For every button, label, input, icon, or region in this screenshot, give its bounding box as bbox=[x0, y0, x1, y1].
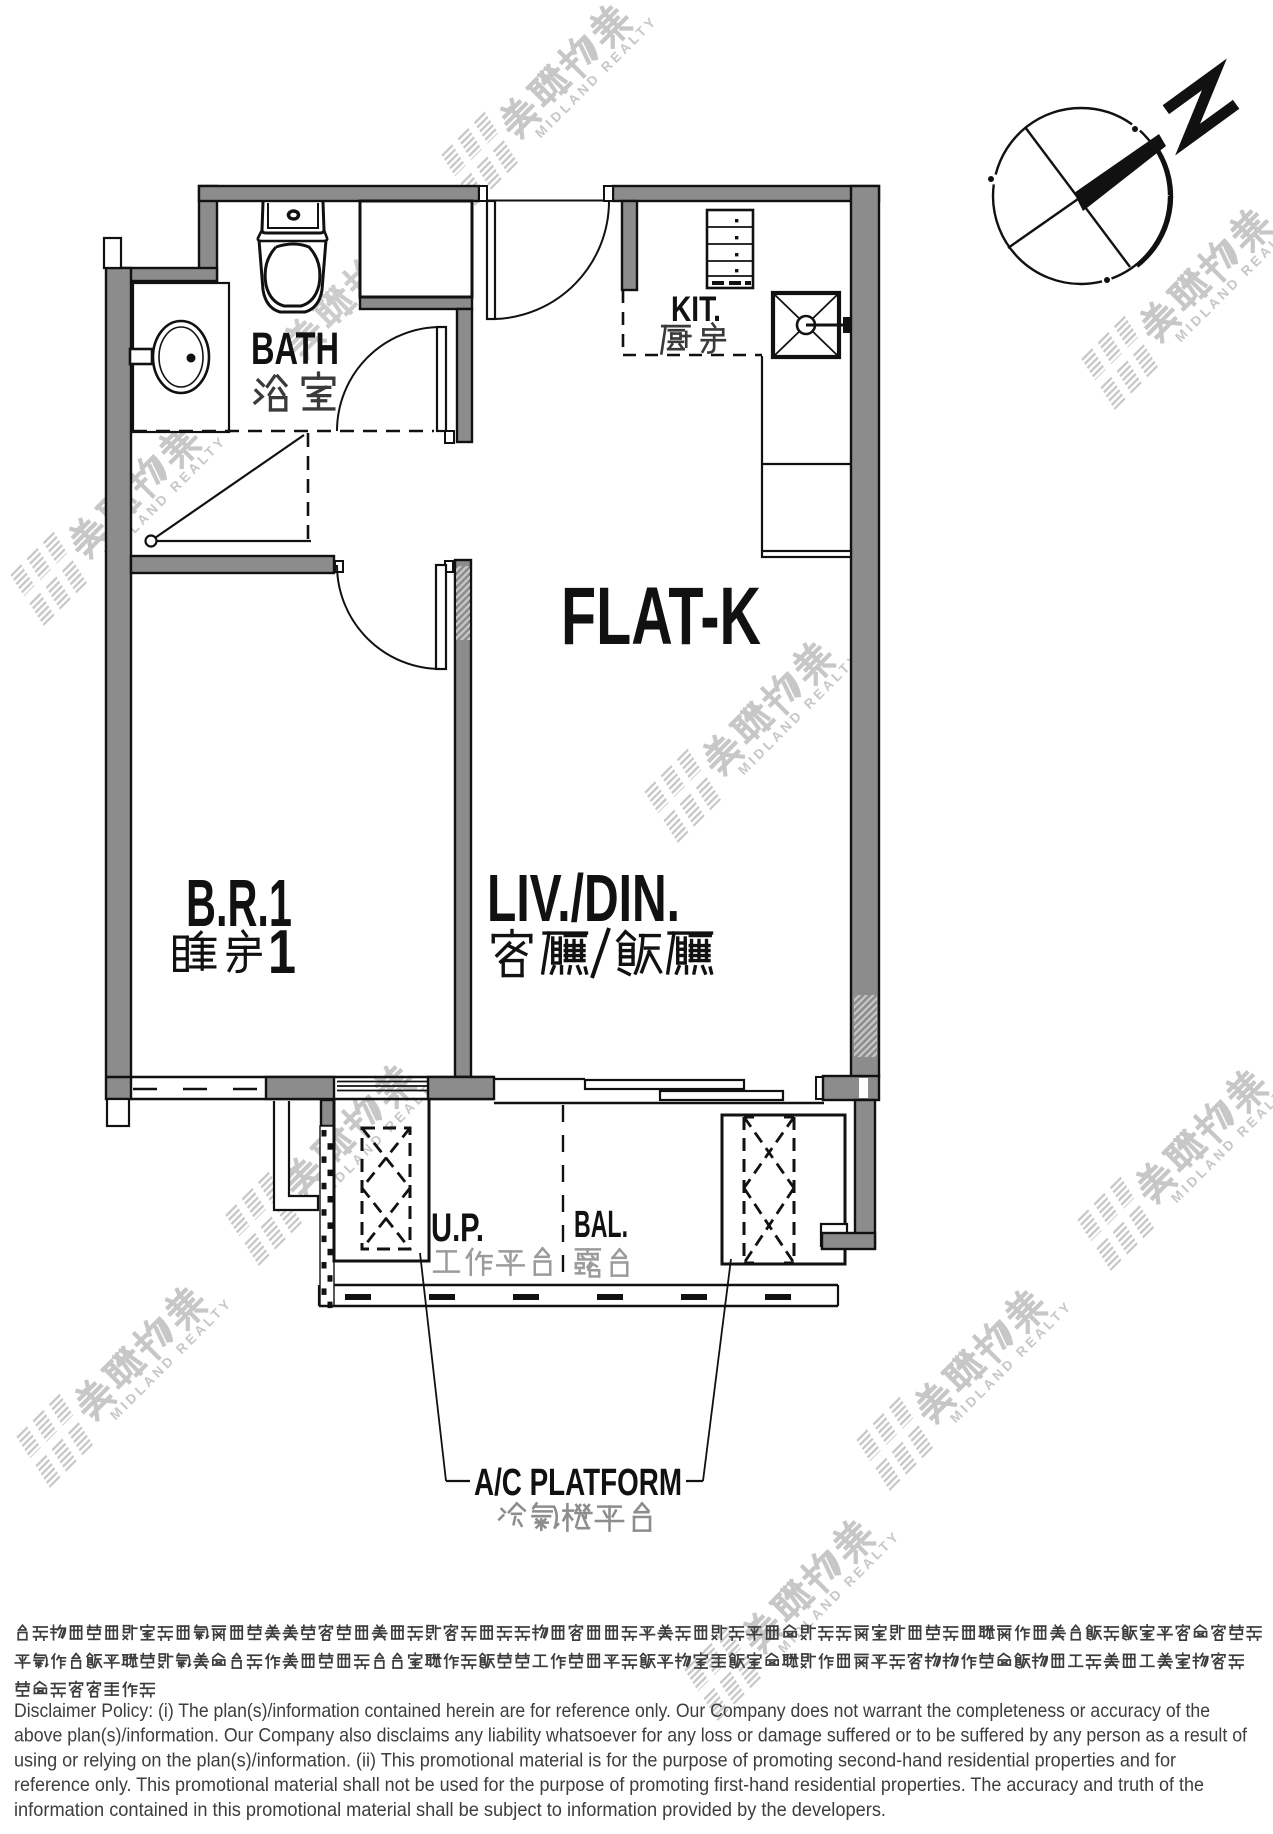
svg-text:Disclaimer Policy: (i) The pla: Disclaimer Policy: (i) The plan(s)/infor… bbox=[14, 1700, 1210, 1722]
svg-text:using or relying on the plan(s: using or relying on the plan(s)/informat… bbox=[14, 1749, 1176, 1771]
svg-text:above plan(s)/information. Our: above plan(s)/information. Our Company a… bbox=[14, 1725, 1248, 1747]
svg-text:1: 1 bbox=[268, 918, 296, 987]
svg-text:U.P.: U.P. bbox=[431, 1206, 484, 1250]
svg-text:information contained in this: information contained in this promotiona… bbox=[14, 1799, 886, 1821]
svg-text:BATH: BATH bbox=[251, 323, 339, 374]
svg-text:A/C PLATFORM: A/C PLATFORM bbox=[474, 1462, 682, 1504]
svg-text:LIV./DIN.: LIV./DIN. bbox=[487, 861, 680, 936]
svg-text:BAL.: BAL. bbox=[574, 1204, 628, 1246]
svg-text:reference only. This promotion: reference only. This promotional materia… bbox=[14, 1774, 1204, 1796]
svg-text:FLAT-K: FLAT-K bbox=[561, 571, 761, 662]
